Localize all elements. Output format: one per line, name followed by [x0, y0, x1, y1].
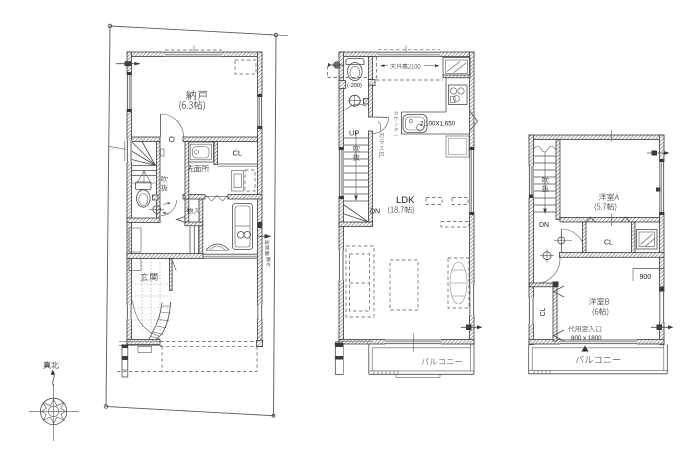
svg-text:LDK: LDK [396, 195, 415, 206]
svg-text:CL: CL [540, 307, 547, 316]
svg-text:CL: CL [604, 240, 613, 247]
svg-text:DN: DN [370, 209, 380, 216]
svg-text:UP: UP [349, 129, 359, 138]
svg-text:800 x 1800: 800 x 1800 [571, 335, 602, 342]
svg-text:(-200): (-200) [347, 83, 362, 89]
svg-text:900: 900 [640, 274, 652, 281]
svg-text:DN: DN [539, 222, 549, 229]
svg-text:2,100X1,650: 2,100X1,650 [420, 121, 456, 128]
svg-text:CL: CL [233, 149, 243, 158]
